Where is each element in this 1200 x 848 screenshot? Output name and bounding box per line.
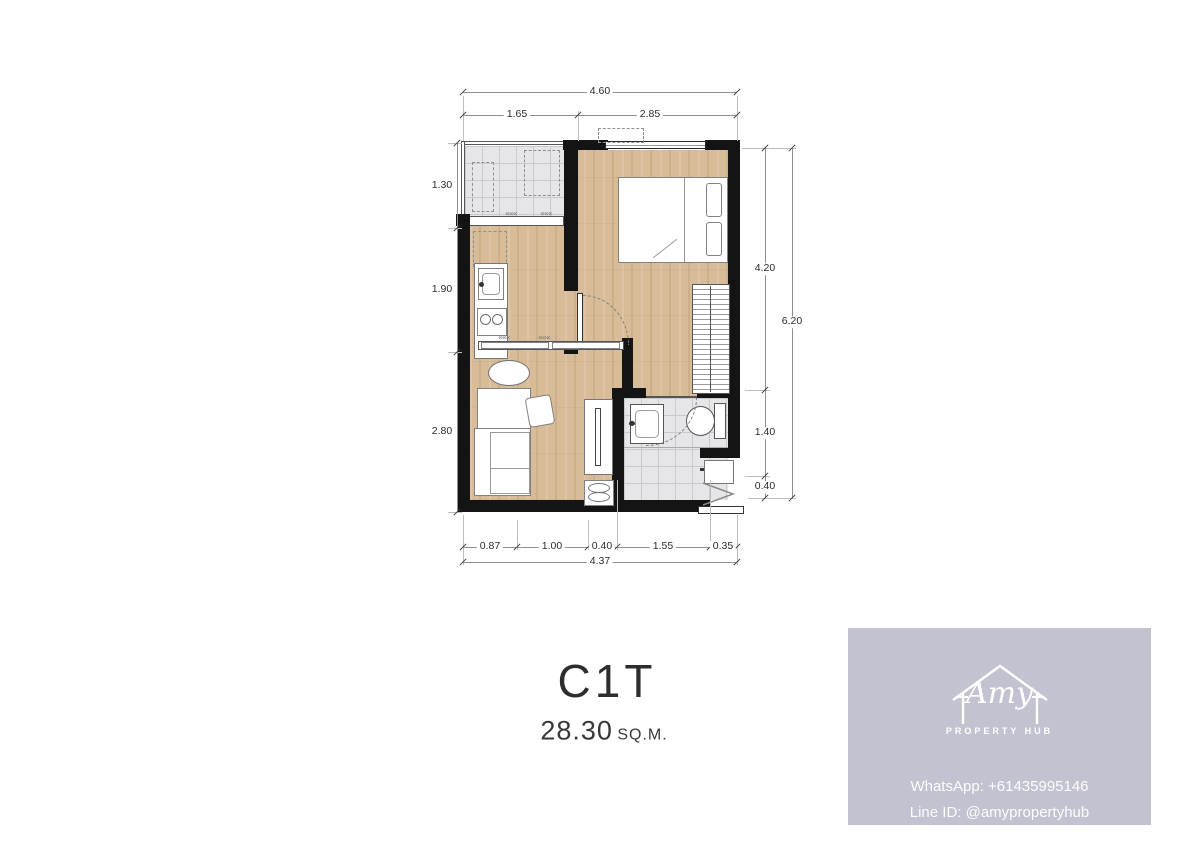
- extension-line: [463, 515, 464, 565]
- sliding-panel: [552, 342, 620, 349]
- brand-tagline: PROPERTY HUB: [848, 726, 1151, 736]
- slide-mark: «««: [505, 209, 517, 218]
- dim-label: 0.35: [710, 541, 736, 553]
- dim-label: 1.30: [429, 180, 455, 192]
- faucet-icon: [629, 421, 635, 426]
- pillow: [706, 222, 722, 256]
- extension-line: [737, 515, 738, 565]
- dim-label: 1.55: [650, 541, 676, 553]
- sliding-panel: [481, 342, 549, 349]
- wall: [700, 448, 740, 458]
- slide-mark: «««: [538, 333, 550, 342]
- desk: [477, 388, 531, 432]
- washer-outline: [472, 162, 494, 212]
- sofa-cushion-line: [491, 468, 529, 469]
- extension-line: [745, 390, 770, 391]
- slide-mark: «««: [540, 209, 552, 218]
- extension-line: [737, 96, 738, 141]
- brand-card: Amy PROPERTY HUB WhatsApp: +61435995146 …: [848, 628, 1151, 825]
- wall: [564, 143, 578, 291]
- unit-area-value: 28.30: [540, 716, 613, 746]
- stool: [488, 360, 530, 386]
- balcony-railing-top: [461, 141, 564, 145]
- window-mullion: [606, 145, 705, 146]
- wardrobe: [692, 284, 730, 394]
- tv: [595, 408, 601, 466]
- balcony-railing-left: [461, 141, 465, 219]
- sink-basin: [482, 273, 500, 295]
- pillow: [706, 183, 722, 217]
- dim-label: 0.87: [477, 541, 503, 553]
- dim-label: 4.37: [587, 556, 613, 568]
- chair: [525, 394, 556, 428]
- fridge-outline: [473, 231, 507, 267]
- ac-ledge-outline: [598, 128, 644, 143]
- dim-label: 0.40: [752, 481, 778, 493]
- dim-label: 2.80: [429, 426, 455, 438]
- unit-area-unit: SQ.M.: [617, 727, 667, 744]
- brand-line-id: Line ID: @amypropertyhub: [848, 804, 1151, 821]
- burner-icon: [480, 314, 491, 325]
- dim-label: 0.40: [589, 541, 615, 553]
- bathroom-door-leaf: [646, 396, 697, 398]
- sofa-seat: [490, 432, 530, 494]
- dim-label: 2.85: [637, 109, 663, 121]
- burner-icon: [492, 314, 503, 325]
- ac-condenser-outline: [524, 150, 560, 196]
- brand-name: Amy: [848, 676, 1151, 711]
- dim-line-right-inner: [765, 148, 766, 498]
- brand-whatsapp: WhatsApp: +61435995146: [848, 778, 1151, 795]
- extension-line: [745, 476, 770, 477]
- dim-label: 4.20: [752, 263, 778, 275]
- slide-mark: «««: [498, 333, 510, 342]
- unit-area: 28.30 SQ.M.: [540, 716, 667, 747]
- dim-label: 1.65: [504, 109, 530, 121]
- entry-door-leaf: [698, 506, 744, 514]
- dim-label: 4.60: [587, 86, 613, 98]
- dim-label: 1.90: [429, 284, 455, 296]
- entry-door-swing-icon: [700, 480, 740, 508]
- extension-line: [742, 148, 796, 149]
- dim-line-left: [457, 143, 458, 512]
- toilet-tank: [714, 403, 726, 439]
- extension-line: [710, 480, 711, 550]
- dim-label: 1.40: [752, 427, 778, 439]
- dim-label: 6.20: [779, 316, 805, 328]
- dim-label: 1.00: [539, 541, 565, 553]
- floor-plan-page: ««« «««: [0, 0, 1200, 848]
- duvet-edge: [684, 178, 685, 262]
- wardrobe-rail: [710, 286, 711, 392]
- shower-partition: [624, 447, 728, 448]
- faucet-icon: [479, 282, 484, 287]
- dim-tick: [733, 88, 740, 95]
- unit-name: C1T: [558, 654, 657, 708]
- extension-line: [617, 480, 618, 550]
- wall: [458, 222, 470, 512]
- extension-line: [463, 96, 464, 141]
- stool-icon: [588, 492, 610, 502]
